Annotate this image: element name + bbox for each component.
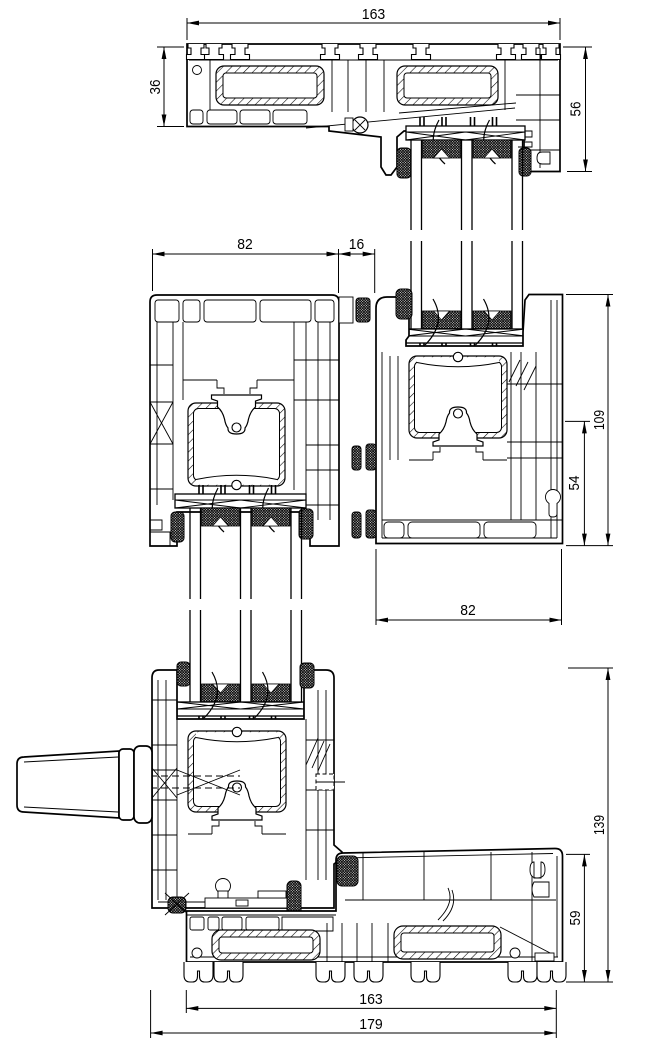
svg-text:56: 56 (568, 102, 585, 117)
svg-text:59: 59 (567, 911, 584, 926)
svg-text:82: 82 (460, 602, 476, 619)
svg-text:139: 139 (591, 815, 608, 835)
svg-text:163: 163 (362, 6, 386, 23)
svg-text:54: 54 (566, 476, 583, 491)
svg-text:179: 179 (359, 1016, 383, 1033)
svg-text:109: 109 (591, 410, 608, 430)
svg-text:16: 16 (349, 236, 365, 253)
svg-text:36: 36 (147, 80, 164, 95)
svg-text:163: 163 (359, 991, 383, 1008)
svg-text:82: 82 (237, 236, 253, 253)
